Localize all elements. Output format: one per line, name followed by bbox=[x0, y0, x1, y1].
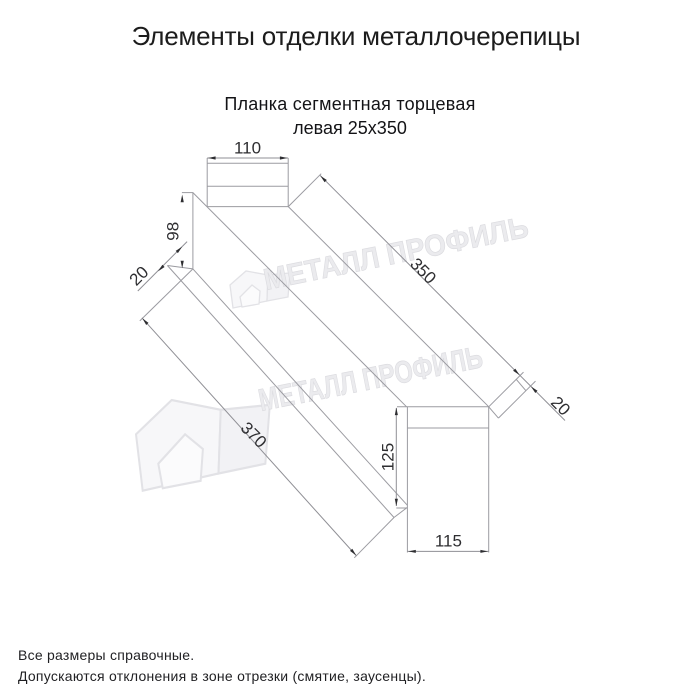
svg-text:МЕТАЛЛ ПРОФИЛЬ: МЕТАЛЛ ПРОФИЛЬ bbox=[256, 339, 486, 417]
svg-text:115: 115 bbox=[435, 532, 462, 551]
svg-text:20: 20 bbox=[547, 393, 574, 420]
svg-text:20: 20 bbox=[126, 263, 153, 290]
svg-text:98: 98 bbox=[164, 222, 183, 241]
svg-text:МЕТАЛЛ ПРОФИЛЬ: МЕТАЛЛ ПРОФИЛЬ bbox=[261, 211, 532, 297]
svg-text:125: 125 bbox=[379, 443, 398, 471]
svg-text:110: 110 bbox=[234, 139, 261, 158]
